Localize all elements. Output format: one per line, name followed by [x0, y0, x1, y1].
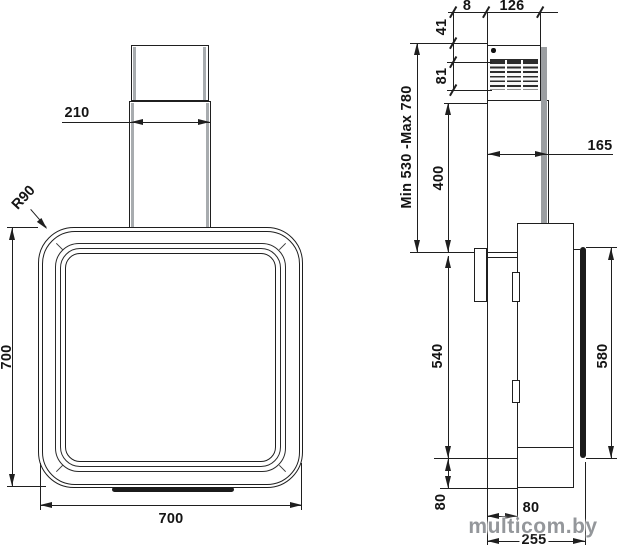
chimney-front-shade — [541, 47, 547, 224]
arrowhead — [445, 240, 451, 252]
dim-label-wall-gap: 8 — [463, 0, 471, 13]
dimension-line — [40, 505, 302, 506]
extension-line — [586, 458, 617, 459]
dim-label-body-height: 540 — [431, 343, 446, 368]
arrowhead — [608, 446, 614, 458]
vent-grille — [490, 59, 538, 90]
dim-label-grille-top-offset: 41 — [435, 19, 450, 36]
chimney-shade — [133, 47, 136, 100]
technical-drawing: 210 R90 700 700 — [0, 0, 618, 550]
dimension-line — [453, 12, 454, 90]
chimney-shade — [203, 47, 206, 100]
body-top-line — [488, 257, 517, 258]
arrowhead — [131, 119, 143, 125]
grille-separator — [505, 60, 507, 90]
dim-label-body-height: 700 — [0, 344, 14, 369]
extension-line — [410, 252, 517, 253]
arrowhead — [9, 228, 15, 240]
arrowhead — [414, 43, 420, 55]
screw-dot — [491, 48, 496, 53]
dim-label-grille-height: 81 — [435, 68, 450, 85]
arrowhead — [535, 151, 547, 157]
clip-detail — [512, 272, 520, 302]
bottom-section-outline — [517, 447, 574, 488]
panel-bottom-edge — [112, 487, 234, 493]
dim-label-bottom-section-height: 80 — [434, 494, 449, 511]
arrowhead — [488, 151, 500, 157]
dimension-line — [448, 103, 449, 252]
arrowhead — [198, 119, 210, 125]
extension-line — [447, 90, 492, 91]
extension-line — [444, 103, 487, 104]
arrowhead — [445, 446, 451, 458]
clip-detail — [512, 380, 520, 403]
motor-housing-outline — [517, 223, 574, 448]
dimension-line — [488, 154, 613, 155]
glass-panel-side — [580, 247, 586, 458]
dim-label-chimney-depth: 126 — [499, 0, 524, 13]
dim-label-chimney-height-range: Min 530 -Max 780 — [400, 85, 415, 208]
arrowhead — [40, 502, 52, 508]
arrowhead — [290, 502, 302, 508]
dim-label-back-depth: 80 — [521, 501, 542, 516]
dim-label-front-panel-height: 580 — [596, 343, 611, 368]
extension-line — [447, 62, 492, 63]
arrowhead — [608, 248, 614, 260]
chimney-upper-outline — [131, 45, 209, 101]
dimension-line — [611, 248, 612, 458]
grille-separator — [521, 60, 523, 90]
dim-label-corner-radius: R90 — [10, 183, 39, 212]
dim-label-lower-chimney-height: 400 — [432, 165, 447, 190]
dim-label-chimney-front-depth: 165 — [587, 139, 612, 154]
arrowhead — [445, 256, 451, 268]
watermark: multicom.by — [468, 515, 597, 539]
chimney-lower-side-outline — [487, 100, 549, 224]
arrowhead — [445, 476, 451, 488]
arrowhead — [9, 474, 15, 486]
arrowhead — [445, 459, 451, 471]
arrowhead — [414, 240, 420, 252]
dim-label-chimney-width: 210 — [64, 106, 89, 121]
extension-line — [410, 43, 487, 44]
arrowhead — [37, 217, 49, 230]
extension-line — [440, 488, 518, 489]
dim-label-body-width: 700 — [158, 512, 183, 527]
arrowhead — [445, 103, 451, 115]
dimension-line — [417, 43, 418, 252]
wall-bracket — [474, 248, 487, 302]
glass-panel-outline — [65, 253, 276, 462]
extension-line — [540, 13, 541, 45]
dimension-line — [448, 256, 449, 458]
